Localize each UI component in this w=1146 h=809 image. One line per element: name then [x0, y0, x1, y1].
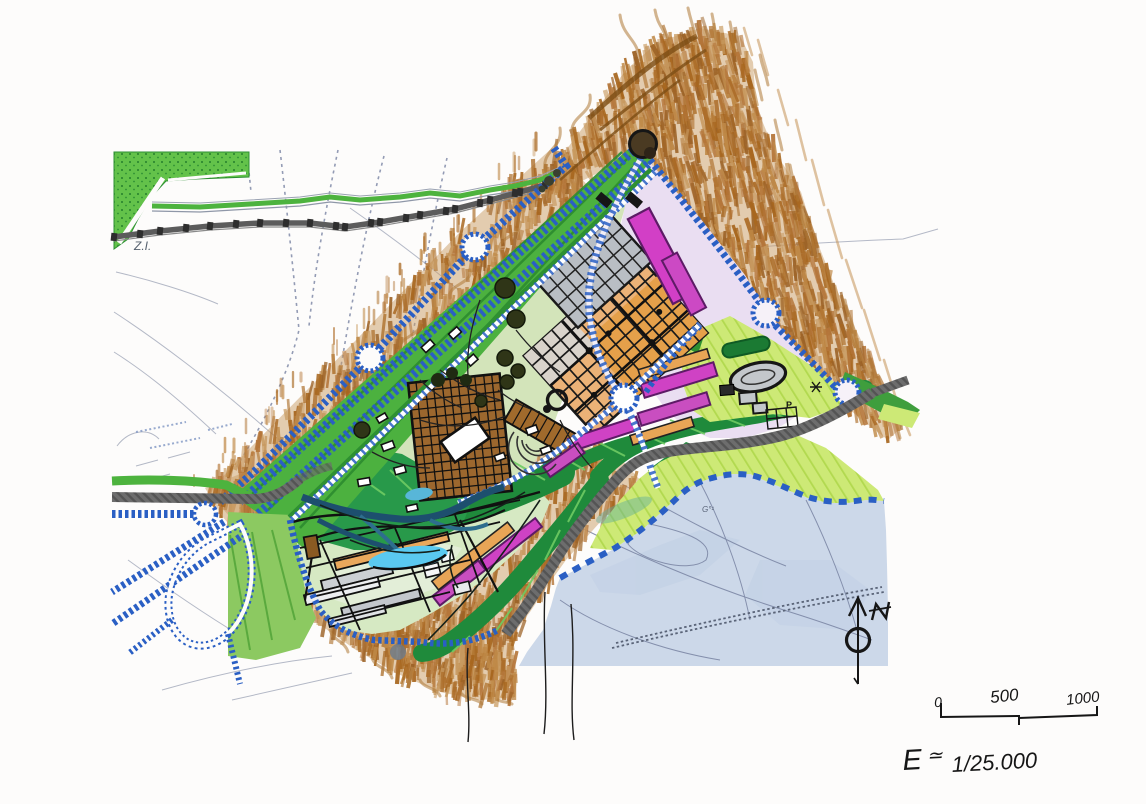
svg-text:1/25.000: 1/25.000: [951, 748, 1039, 777]
svg-text:1000: 1000: [1065, 688, 1101, 708]
svg-text:Z.I.: Z.I.: [133, 239, 151, 253]
svg-text:500: 500: [989, 685, 1020, 707]
svg-text:0: 0: [934, 694, 943, 711]
svg-text:≃: ≃: [926, 745, 944, 767]
svg-text:P: P: [786, 400, 792, 410]
svg-text:E: E: [902, 744, 924, 777]
svg-text:G°¹: G°¹: [702, 505, 714, 514]
